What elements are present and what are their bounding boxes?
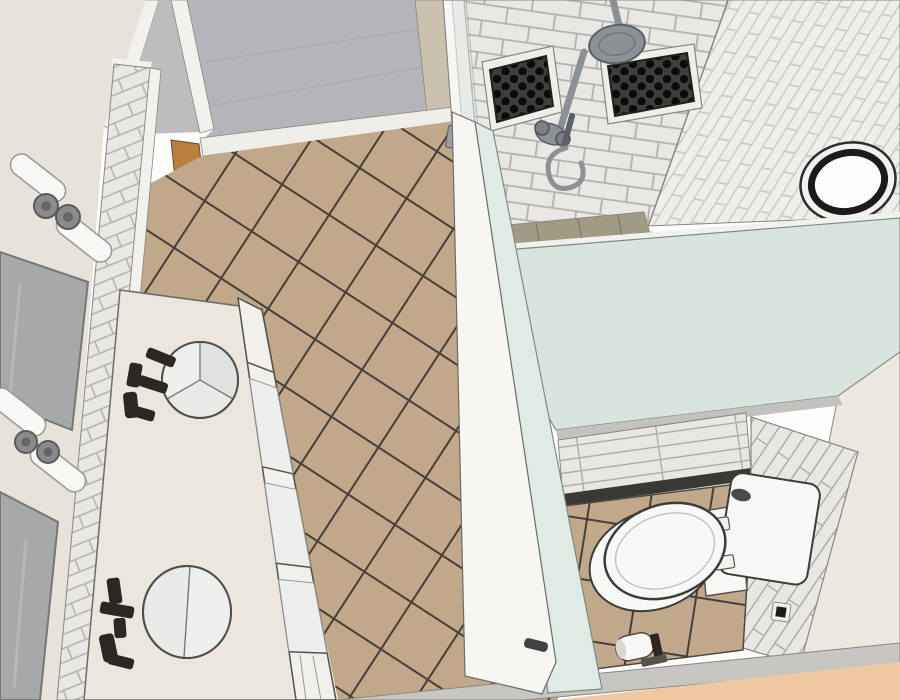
- valve-handle-left: [535, 121, 549, 135]
- electrical-outlet: [771, 602, 791, 622]
- bathroom-3d-render[interactable]: 3D overhead render of a bathroom (orbit …: [0, 0, 900, 700]
- vessel-sink-upper: [162, 342, 238, 418]
- 3d-viewport[interactable]: 3D overhead render of a bathroom (orbit …: [0, 0, 900, 700]
- toilet-tank: [717, 471, 822, 586]
- vessel-sink-lower: [143, 566, 231, 658]
